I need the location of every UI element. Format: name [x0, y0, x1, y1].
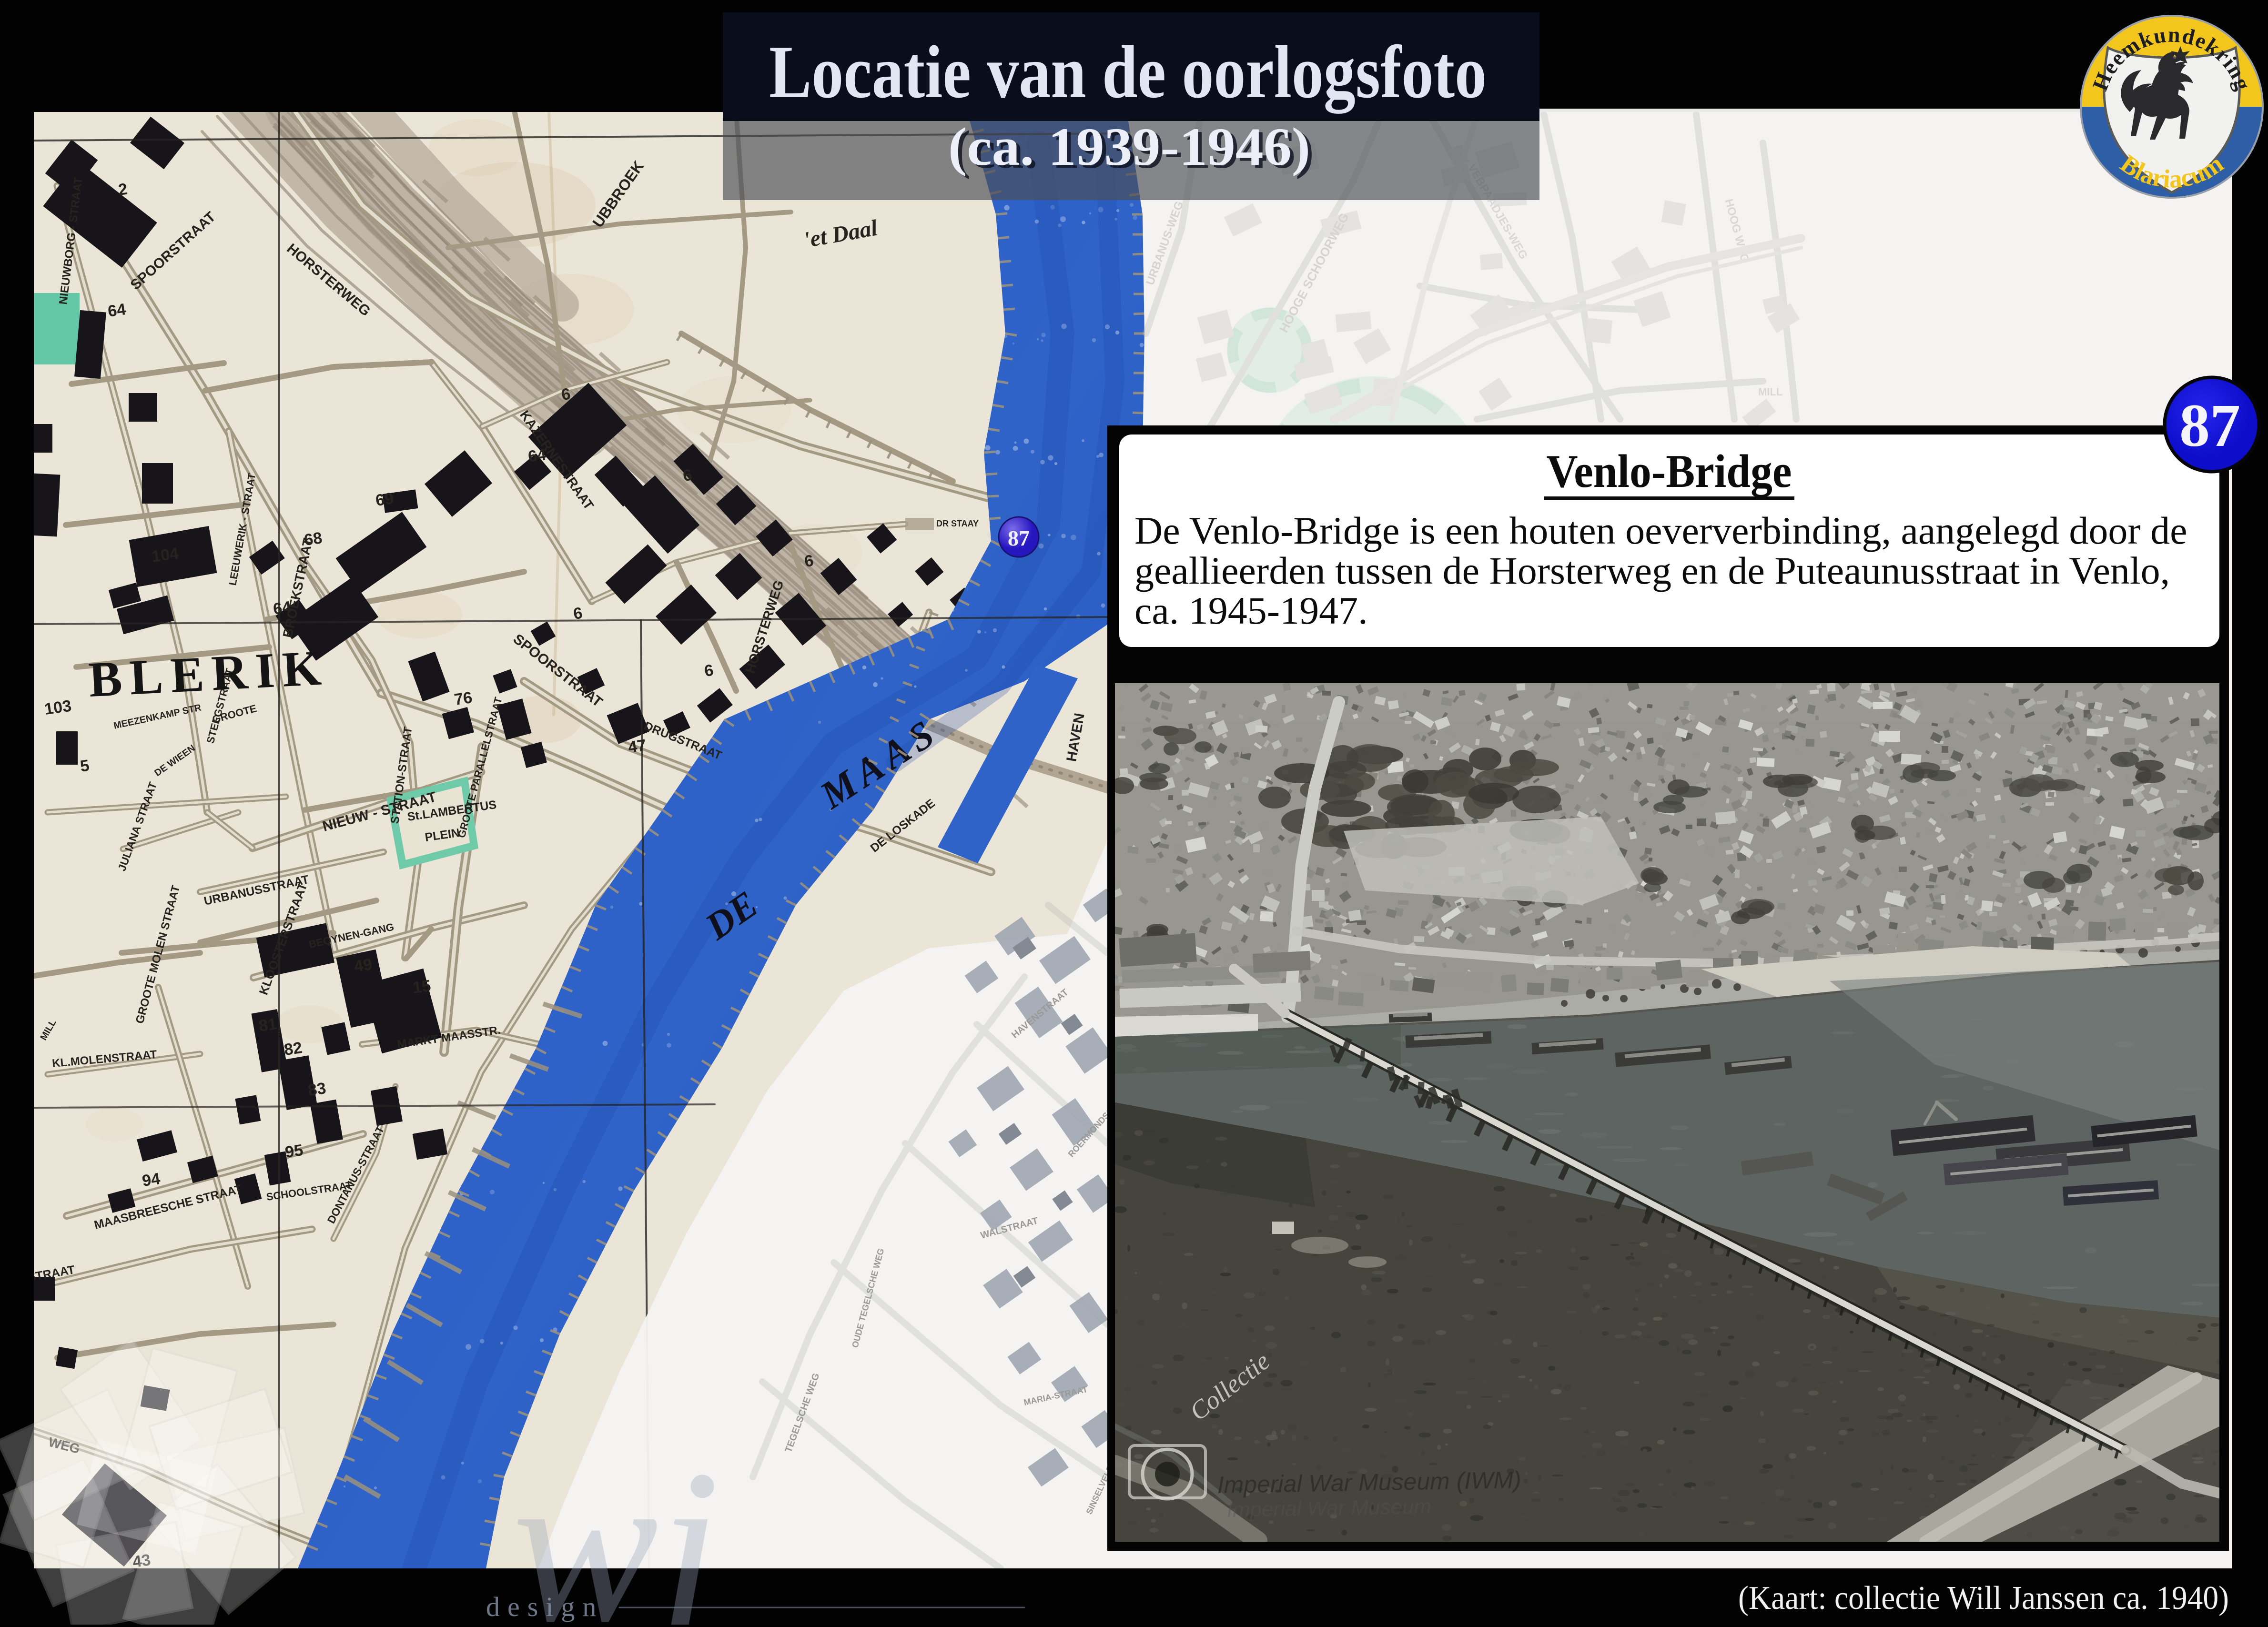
svg-text:(Kaart: collectie Will Janssen: (Kaart: collectie Will Janssen ca. 1940) [1738, 1580, 2229, 1617]
svg-text:De Venlo-Bridge is een houten: De Venlo-Bridge is een houten oeververbi… [1134, 509, 2187, 552]
svg-text:87: 87 [1008, 526, 1030, 550]
svg-text:49: 49 [353, 955, 374, 976]
svg-text:104: 104 [151, 544, 180, 566]
svg-text:64: 64 [107, 300, 127, 321]
svg-text:76: 76 [453, 688, 474, 709]
svg-text:Imperial War Museum (IWM): Imperial War Museum (IWM) [1217, 1466, 1521, 1498]
svg-text:83: 83 [307, 1079, 327, 1100]
svg-text:64: 64 [527, 445, 547, 466]
svg-text:81: 81 [258, 1015, 278, 1035]
svg-text:69: 69 [375, 489, 395, 510]
svg-text:82: 82 [283, 1039, 304, 1059]
svg-text:15: 15 [412, 977, 432, 997]
svg-text:94: 94 [141, 1170, 162, 1190]
svg-text:ca. 1945-1947.: ca. 1945-1947. [1134, 589, 1368, 632]
svg-text:Imperial War Museum: Imperial War Museum [1226, 1495, 1431, 1522]
svg-text:DR STAAY: DR STAAY [936, 519, 979, 528]
svg-text:87: 87 [2179, 392, 2240, 459]
svg-text:47: 47 [627, 736, 648, 757]
svg-text:103: 103 [43, 697, 72, 718]
svg-text:MILL: MILL [1758, 386, 1782, 398]
svg-text:68: 68 [303, 529, 324, 549]
svg-text:Locatie van de oorlogsfoto: Locatie van de oorlogsfoto [769, 30, 1487, 114]
svg-text:design: design [486, 1591, 604, 1622]
svg-text:95: 95 [284, 1141, 304, 1162]
svg-text:Venlo-Bridge: Venlo-Bridge [1547, 445, 1792, 497]
svg-text:(ca. 1939-1946): (ca. 1939-1946) [948, 117, 1310, 177]
svg-text:geallieerden tussen de Horster: geallieerden tussen de Horsterweg en de … [1134, 549, 2170, 592]
svg-text:64: 64 [272, 598, 293, 618]
